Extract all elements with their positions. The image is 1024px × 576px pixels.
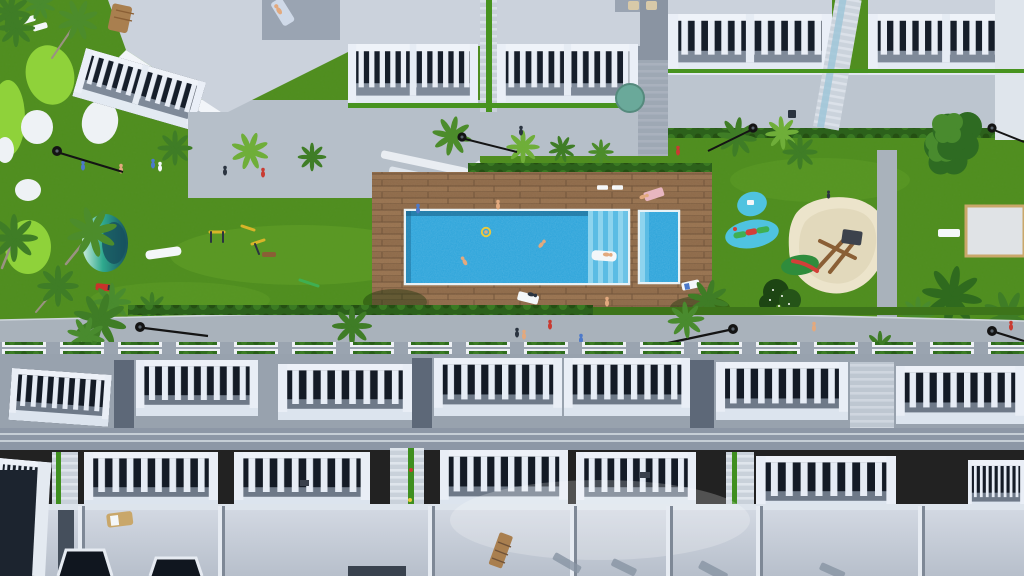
palm-icon [37,265,79,307]
deck-person [416,204,420,214]
balcony-unit [716,362,848,420]
boules-court [966,206,1024,256]
green-strip [668,69,1024,73]
bottom-building-rows [0,354,1024,576]
main-pool [405,210,629,284]
kids-pool-steps [645,212,649,282]
balcony-unit [278,364,412,420]
stairwell-green [480,0,497,112]
row-a-roof-slope [0,428,1024,450]
pool-deck [363,163,730,320]
balcony-unit [756,456,896,512]
balcony-unit [348,44,478,108]
palm-icon [782,134,817,169]
playground-person [827,191,830,199]
palm-icon [298,143,327,172]
sand-bunker [15,179,41,201]
roof-vent [300,480,309,486]
white-bench [938,229,960,237]
palm-icon [588,139,614,165]
promenade-person [548,320,552,330]
building-block-b [340,0,480,108]
deck-person [496,200,500,210]
promenade-person [522,330,526,340]
pool-float [591,250,617,262]
kids-pool [639,211,679,283]
promenade-person [515,328,519,338]
deck-person [605,297,609,307]
promenade-hedge [128,305,593,315]
balcony-unit [564,358,690,416]
alley-steps [638,60,668,156]
pool-edge-shadow [406,211,411,283]
promenade-person [1009,321,1013,331]
grass-verge [593,307,1024,315]
frame-platform [841,229,863,246]
sand-bunker [21,110,53,144]
palm-icon [332,306,372,346]
promenade-person [812,322,816,332]
scene-canvas [0,0,1024,576]
roof-vent [640,472,650,478]
palm-icon [506,130,540,164]
roof-plate [340,0,480,46]
roof-plate [668,0,832,16]
balcony-unit [8,368,111,427]
patio-table [788,110,796,118]
balcony-unit [668,14,832,74]
green-strip [348,103,640,108]
balcony-unit [434,358,562,416]
building-block-d [668,0,832,74]
pond-toy [747,200,754,205]
aerial-render [0,0,1024,576]
kids-pool-steps [640,212,645,282]
balcony-unit [896,366,1024,424]
tree-icon [932,113,963,143]
balcony-unit [84,452,218,508]
palm-icon [157,130,192,165]
connector-path [877,150,897,320]
pool-steps [588,211,628,283]
balcony-unit [136,360,258,416]
roof-planter-strip [0,342,1024,354]
